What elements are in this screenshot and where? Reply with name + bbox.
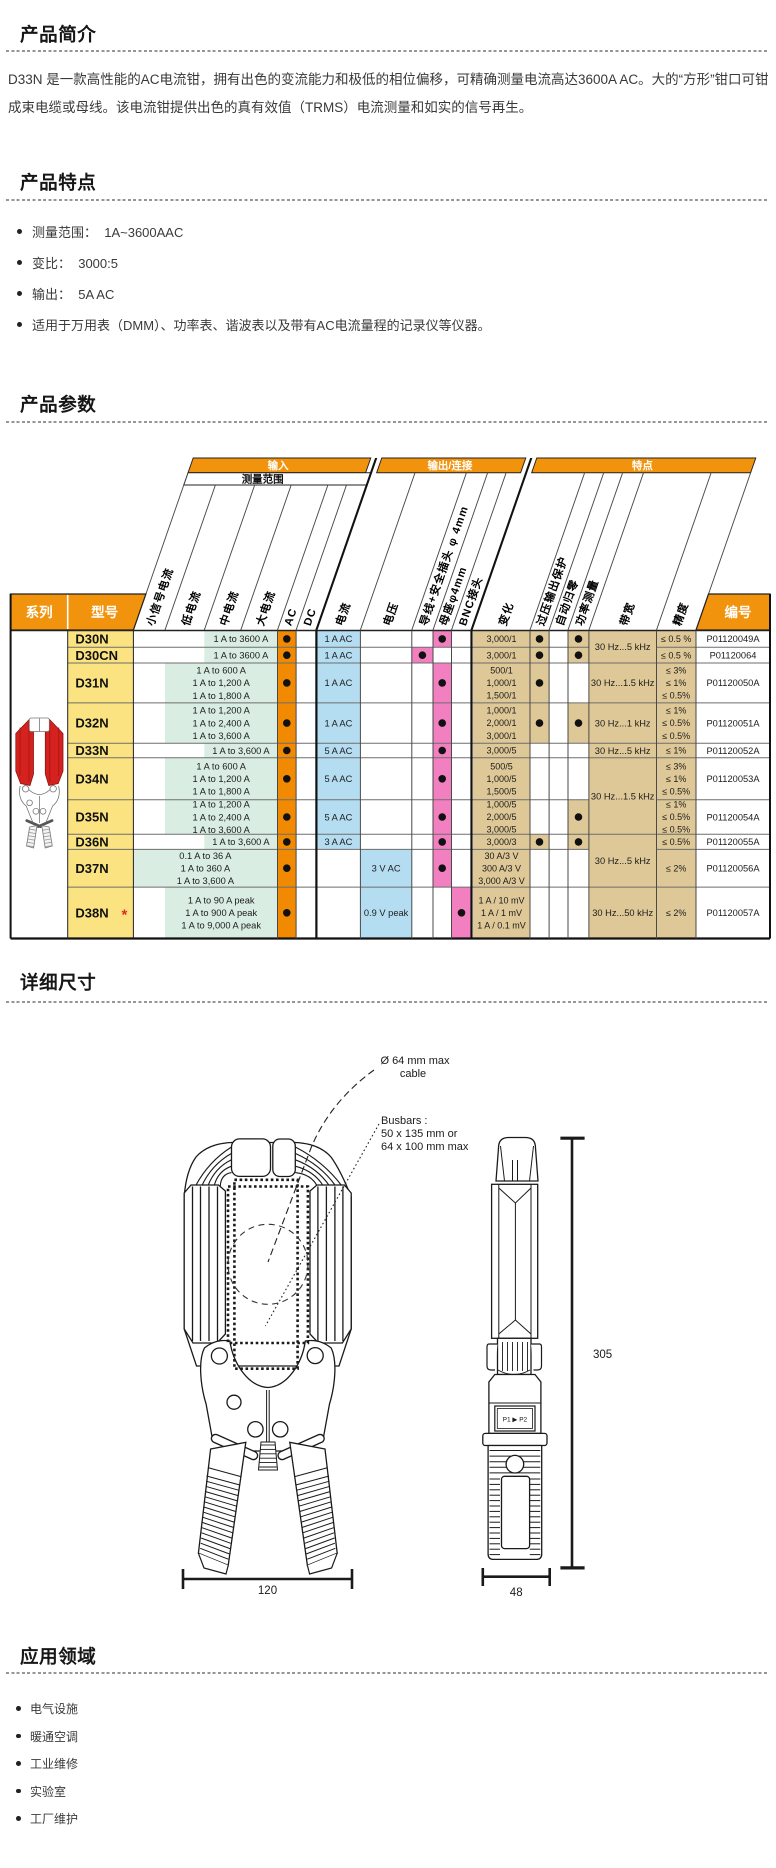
svg-text:D30CN: D30CN xyxy=(75,648,118,663)
svg-text:1 A AC: 1 A AC xyxy=(324,678,352,688)
svg-text:D36N: D36N xyxy=(75,835,108,850)
svg-text:300 A/3 V: 300 A/3 V xyxy=(482,863,521,873)
svg-text:30 Hz...1 kHz: 30 Hz...1 kHz xyxy=(595,718,651,728)
svg-text:D31N: D31N xyxy=(75,676,108,691)
svg-text:≤ 1%: ≤ 1% xyxy=(666,774,686,784)
svg-text:P01120049A: P01120049A xyxy=(706,634,760,644)
svg-text:带宽: 带宽 xyxy=(617,600,638,627)
svg-text:≤ 0.5%: ≤ 0.5% xyxy=(662,691,690,701)
svg-text:AC: AC xyxy=(283,606,300,627)
svg-text:3,000/1: 3,000/1 xyxy=(486,634,516,644)
svg-text:P01120051A: P01120051A xyxy=(706,718,760,728)
svg-text:P01120057A: P01120057A xyxy=(706,908,760,918)
svg-text:≤ 1%: ≤ 1% xyxy=(666,706,686,716)
svg-text:输出/连接: 输出/连接 xyxy=(427,459,472,472)
svg-text:1 A to 1,200 A: 1 A to 1,200 A xyxy=(193,706,251,716)
svg-text:P01120052A: P01120052A xyxy=(706,746,760,756)
svg-text:≤ 0.5%: ≤ 0.5% xyxy=(662,825,690,835)
svg-text:≤ 0.5%: ≤ 0.5% xyxy=(662,787,690,797)
svg-text:1,500/5: 1,500/5 xyxy=(486,787,516,797)
svg-text:Busbars :: Busbars : xyxy=(381,1115,427,1127)
svg-text:≤ 1%: ≤ 1% xyxy=(666,800,686,810)
svg-text:1 A to 1,800 A: 1 A to 1,800 A xyxy=(193,691,251,701)
svg-text:30 Hz...1.5 kHz: 30 Hz...1.5 kHz xyxy=(591,678,655,688)
svg-text:≤ 0.5 %: ≤ 0.5 % xyxy=(661,650,691,660)
svg-text:系列: 系列 xyxy=(26,604,53,620)
svg-text:P01120053A: P01120053A xyxy=(706,774,760,784)
svg-text:≤ 0.5%: ≤ 0.5% xyxy=(662,718,690,728)
svg-text:DC: DC xyxy=(302,606,319,627)
svg-text:30 Hz...5 kHz: 30 Hz...5 kHz xyxy=(595,746,651,756)
svg-text:1,000/1: 1,000/1 xyxy=(486,678,516,688)
svg-text:64 x 100 mm max: 64 x 100 mm max xyxy=(381,1141,469,1153)
svg-text:1 A to 900 A peak: 1 A to 900 A peak xyxy=(185,908,257,918)
svg-text:电流: 电流 xyxy=(332,600,353,627)
svg-text:P1 ▶ P2: P1 ▶ P2 xyxy=(503,1417,528,1424)
svg-text:30 Hz...5 kHz: 30 Hz...5 kHz xyxy=(595,642,651,652)
svg-text:P01120056A: P01120056A xyxy=(706,864,760,874)
svg-text:1,000/5: 1,000/5 xyxy=(486,774,516,784)
svg-text:30 A/3 V: 30 A/3 V xyxy=(484,851,518,861)
svg-text:5 A AC: 5 A AC xyxy=(324,812,352,822)
svg-text:D35N: D35N xyxy=(75,810,108,825)
svg-text:1 A AC: 1 A AC xyxy=(324,634,352,644)
svg-text:1 A to 2,400 A: 1 A to 2,400 A xyxy=(193,718,251,728)
svg-text:测量范围: 测量范围 xyxy=(242,473,284,486)
svg-text:500/1: 500/1 xyxy=(490,666,513,676)
svg-text:1 A AC: 1 A AC xyxy=(324,651,352,661)
svg-text:≤ 3%: ≤ 3% xyxy=(666,666,686,676)
svg-text:0.1 A to 36 A: 0.1 A to 36 A xyxy=(179,851,232,861)
svg-text:3,000/5: 3,000/5 xyxy=(486,825,516,835)
svg-text:≤ 0.5%: ≤ 0.5% xyxy=(662,731,690,741)
svg-text:1 A to 3,600 A: 1 A to 3,600 A xyxy=(212,746,270,756)
svg-text:中电流: 中电流 xyxy=(216,589,241,628)
svg-text:低电流: 低电流 xyxy=(178,589,203,629)
svg-text:1 A to 1,200 A: 1 A to 1,200 A xyxy=(193,678,251,688)
svg-text:1 A to 3600 A: 1 A to 3600 A xyxy=(213,634,269,644)
svg-text:5 A AC: 5 A AC xyxy=(324,774,352,784)
svg-text:P01120054A: P01120054A xyxy=(706,812,760,822)
svg-text:3,000/1: 3,000/1 xyxy=(486,731,516,741)
svg-text:编号: 编号 xyxy=(725,604,752,620)
svg-text:3 A AC: 3 A AC xyxy=(324,837,352,847)
svg-text:≤ 0.5%: ≤ 0.5% xyxy=(662,837,690,847)
svg-text:D37N: D37N xyxy=(75,861,108,876)
svg-text:≤ 0.5%: ≤ 0.5% xyxy=(662,812,690,822)
svg-text:0.9 V peak: 0.9 V peak xyxy=(364,908,409,918)
svg-text:特点: 特点 xyxy=(632,459,653,472)
svg-text:1 A to 600 A: 1 A to 600 A xyxy=(196,761,246,771)
svg-text:1 A to 9,000 A peak: 1 A to 9,000 A peak xyxy=(181,921,261,931)
svg-text:500/5: 500/5 xyxy=(490,761,513,771)
svg-text:3 V AC: 3 V AC xyxy=(372,864,401,874)
svg-text:3,000 A/3 V: 3,000 A/3 V xyxy=(478,876,525,886)
svg-text:P01120055A: P01120055A xyxy=(706,837,760,847)
svg-text:1 A to 600 A: 1 A to 600 A xyxy=(196,666,246,676)
svg-text:1 A to 1,200 A: 1 A to 1,200 A xyxy=(193,800,251,810)
svg-text:≤ 1%: ≤ 1% xyxy=(666,746,686,756)
svg-text:≤ 0.5 %: ≤ 0.5 % xyxy=(661,634,691,644)
svg-text:D33N: D33N xyxy=(75,743,108,758)
svg-text:30 Hz...5 kHz: 30 Hz...5 kHz xyxy=(595,856,651,866)
svg-text:1 A to 2,400 A: 1 A to 2,400 A xyxy=(193,812,251,822)
svg-text:≤ 1%: ≤ 1% xyxy=(666,678,686,688)
svg-text:50 x 135 mm or: 50 x 135 mm or xyxy=(381,1128,458,1140)
svg-text:电压: 电压 xyxy=(380,600,401,627)
svg-text:变化: 变化 xyxy=(495,600,516,627)
svg-text:型号: 型号 xyxy=(91,604,118,620)
svg-text:1 A AC: 1 A AC xyxy=(324,718,352,728)
svg-text:305: 305 xyxy=(593,1349,612,1361)
svg-text:1 A to 3,600 A: 1 A to 3,600 A xyxy=(193,731,251,741)
svg-text:D30N: D30N xyxy=(75,632,108,647)
svg-text:1,000/1: 1,000/1 xyxy=(486,706,516,716)
svg-text:120: 120 xyxy=(258,1585,277,1597)
svg-text:1 A to 1,200 A: 1 A to 1,200 A xyxy=(193,774,251,784)
svg-text:1 A to 360 A: 1 A to 360 A xyxy=(181,864,231,874)
svg-text:2,000/5: 2,000/5 xyxy=(486,812,516,822)
svg-text:1 A / 1 mV: 1 A / 1 mV xyxy=(481,908,522,918)
svg-text:48: 48 xyxy=(510,1587,523,1599)
svg-text:3,000/3: 3,000/3 xyxy=(486,837,516,847)
svg-text:5 A AC: 5 A AC xyxy=(324,746,352,756)
svg-text:1,500/1: 1,500/1 xyxy=(486,691,516,701)
svg-text:1 A to 3,600 A: 1 A to 3,600 A xyxy=(193,825,251,835)
svg-text:1 A to 3,600 A: 1 A to 3,600 A xyxy=(177,876,235,886)
svg-text:30 Hz...50 kHz: 30 Hz...50 kHz xyxy=(592,908,653,918)
svg-text:1 A to 90 A peak: 1 A to 90 A peak xyxy=(188,896,255,906)
svg-text:cable: cable xyxy=(400,1068,426,1080)
svg-text:D38N: D38N xyxy=(75,905,108,920)
svg-text:3,000/1: 3,000/1 xyxy=(486,650,516,660)
svg-text:3,000/5: 3,000/5 xyxy=(486,746,516,756)
svg-text:精度: 精度 xyxy=(670,600,691,627)
svg-text:D34N: D34N xyxy=(75,771,108,786)
svg-text:P01120050A: P01120050A xyxy=(706,678,760,688)
svg-text:1 A to 3600 A: 1 A to 3600 A xyxy=(213,650,269,660)
svg-text:1 A to 3,600 A: 1 A to 3,600 A xyxy=(212,837,270,847)
svg-text:2,000/1: 2,000/1 xyxy=(486,718,516,728)
svg-text:1 A / 10 mV: 1 A / 10 mV xyxy=(478,895,524,905)
svg-text:≤ 2%: ≤ 2% xyxy=(666,863,686,873)
svg-text:D32N: D32N xyxy=(75,716,108,731)
svg-text:输入: 输入 xyxy=(268,459,289,472)
svg-text:Ø 64 mm max: Ø 64 mm max xyxy=(380,1055,450,1067)
svg-text:≤ 3%: ≤ 3% xyxy=(666,761,686,771)
svg-text:1,000/5: 1,000/5 xyxy=(486,800,516,810)
svg-text:*: * xyxy=(121,906,127,923)
svg-text:1 A / 0.1 mV: 1 A / 0.1 mV xyxy=(477,921,526,931)
svg-text:≤ 2%: ≤ 2% xyxy=(666,908,686,918)
svg-text:30 Hz...1.5 kHz: 30 Hz...1.5 kHz xyxy=(591,791,655,801)
svg-text:1 A to 1,800 A: 1 A to 1,800 A xyxy=(193,787,251,797)
svg-text:小信号电流: 小信号电流 xyxy=(143,566,176,629)
svg-text:P01120064: P01120064 xyxy=(710,651,757,661)
svg-text:大电流: 大电流 xyxy=(253,589,278,628)
